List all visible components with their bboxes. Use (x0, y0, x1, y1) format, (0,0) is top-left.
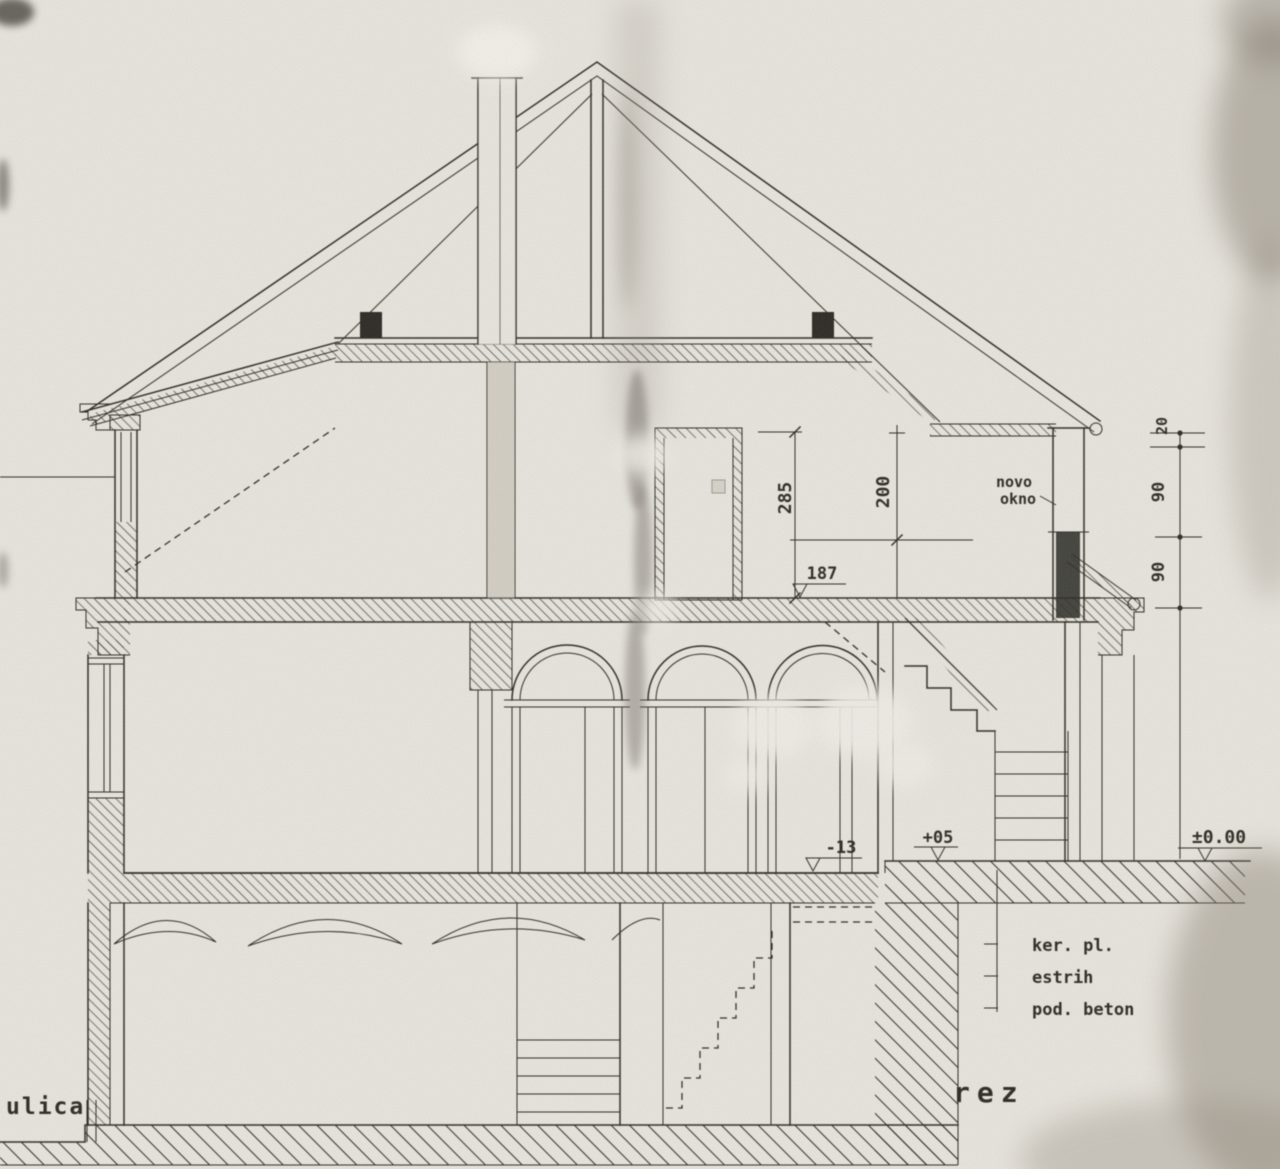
section-drawing-sheet: 285 200 187 20 90 90 -13 (0, 0, 1280, 1169)
dim-285-label: 285 (775, 482, 796, 515)
new-window-fill (1056, 532, 1080, 618)
dim-90b-label: 90 (1149, 562, 1169, 582)
chimney (472, 78, 522, 344)
new-window-note-line2: okno (1000, 490, 1036, 508)
dim-20-label: 20 (1153, 417, 1171, 435)
floor-layer-label: estrih (1032, 968, 1093, 988)
level-187-label: 187 (807, 564, 838, 584)
level-minus13-label: -13 (826, 838, 857, 858)
house-section-drawing: 285 200 187 20 90 90 -13 (0, 0, 1280, 1169)
dim-90a-label: 90 (1149, 482, 1169, 502)
dim-200-label: 200 (873, 476, 894, 509)
new-window-note-line1: novo (996, 473, 1032, 491)
level-zero-label: ±0.00 (1192, 827, 1246, 848)
street-label: ulica (6, 1094, 85, 1120)
level-plus05-label: +05 (923, 828, 954, 848)
paper-background (0, 0, 1280, 1169)
beam-end (360, 312, 382, 338)
section-title: rez (953, 1076, 1025, 1109)
floor-layer-label: pod. beton (1032, 1000, 1134, 1020)
floor-layer-label: ker. pl. (1032, 936, 1114, 956)
